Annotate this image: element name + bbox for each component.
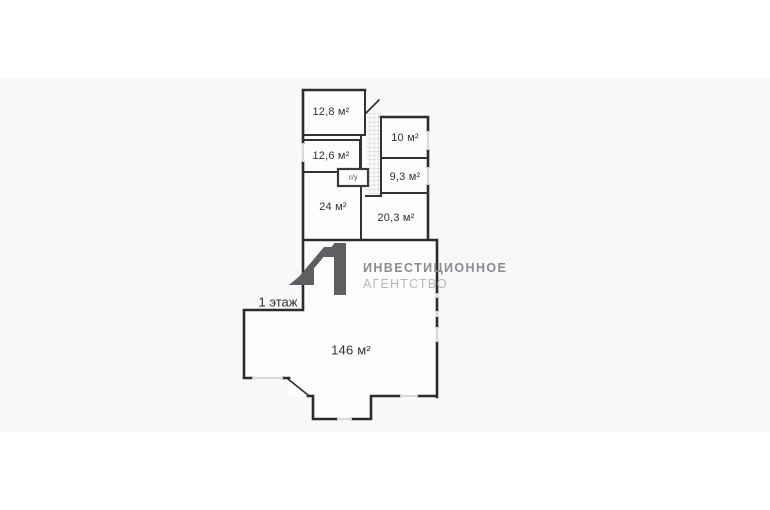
floor-plan — [0, 0, 770, 510]
room-area-label-12-6: 12,6 м² — [312, 150, 349, 162]
room-area-label-24: 24 м² — [319, 201, 347, 213]
floor-number-label: 1 этаж — [259, 295, 298, 310]
room-area-label-bathroom: с/у — [349, 175, 358, 182]
agency-watermark-name: ИНВЕСТИЦИОННОЕ — [363, 261, 507, 275]
agency-watermark-subtitle: АГЕНТСТВО — [363, 277, 448, 291]
room-area-label-146: 146 м² — [331, 343, 371, 358]
room-area-label-9-3: 9,3 м² — [390, 171, 421, 183]
room-area-label-12-8: 12,8 м² — [312, 106, 349, 118]
room-area-label-10: 10 м² — [391, 132, 419, 144]
room-area-label-20-3: 20,3 м² — [377, 212, 414, 224]
